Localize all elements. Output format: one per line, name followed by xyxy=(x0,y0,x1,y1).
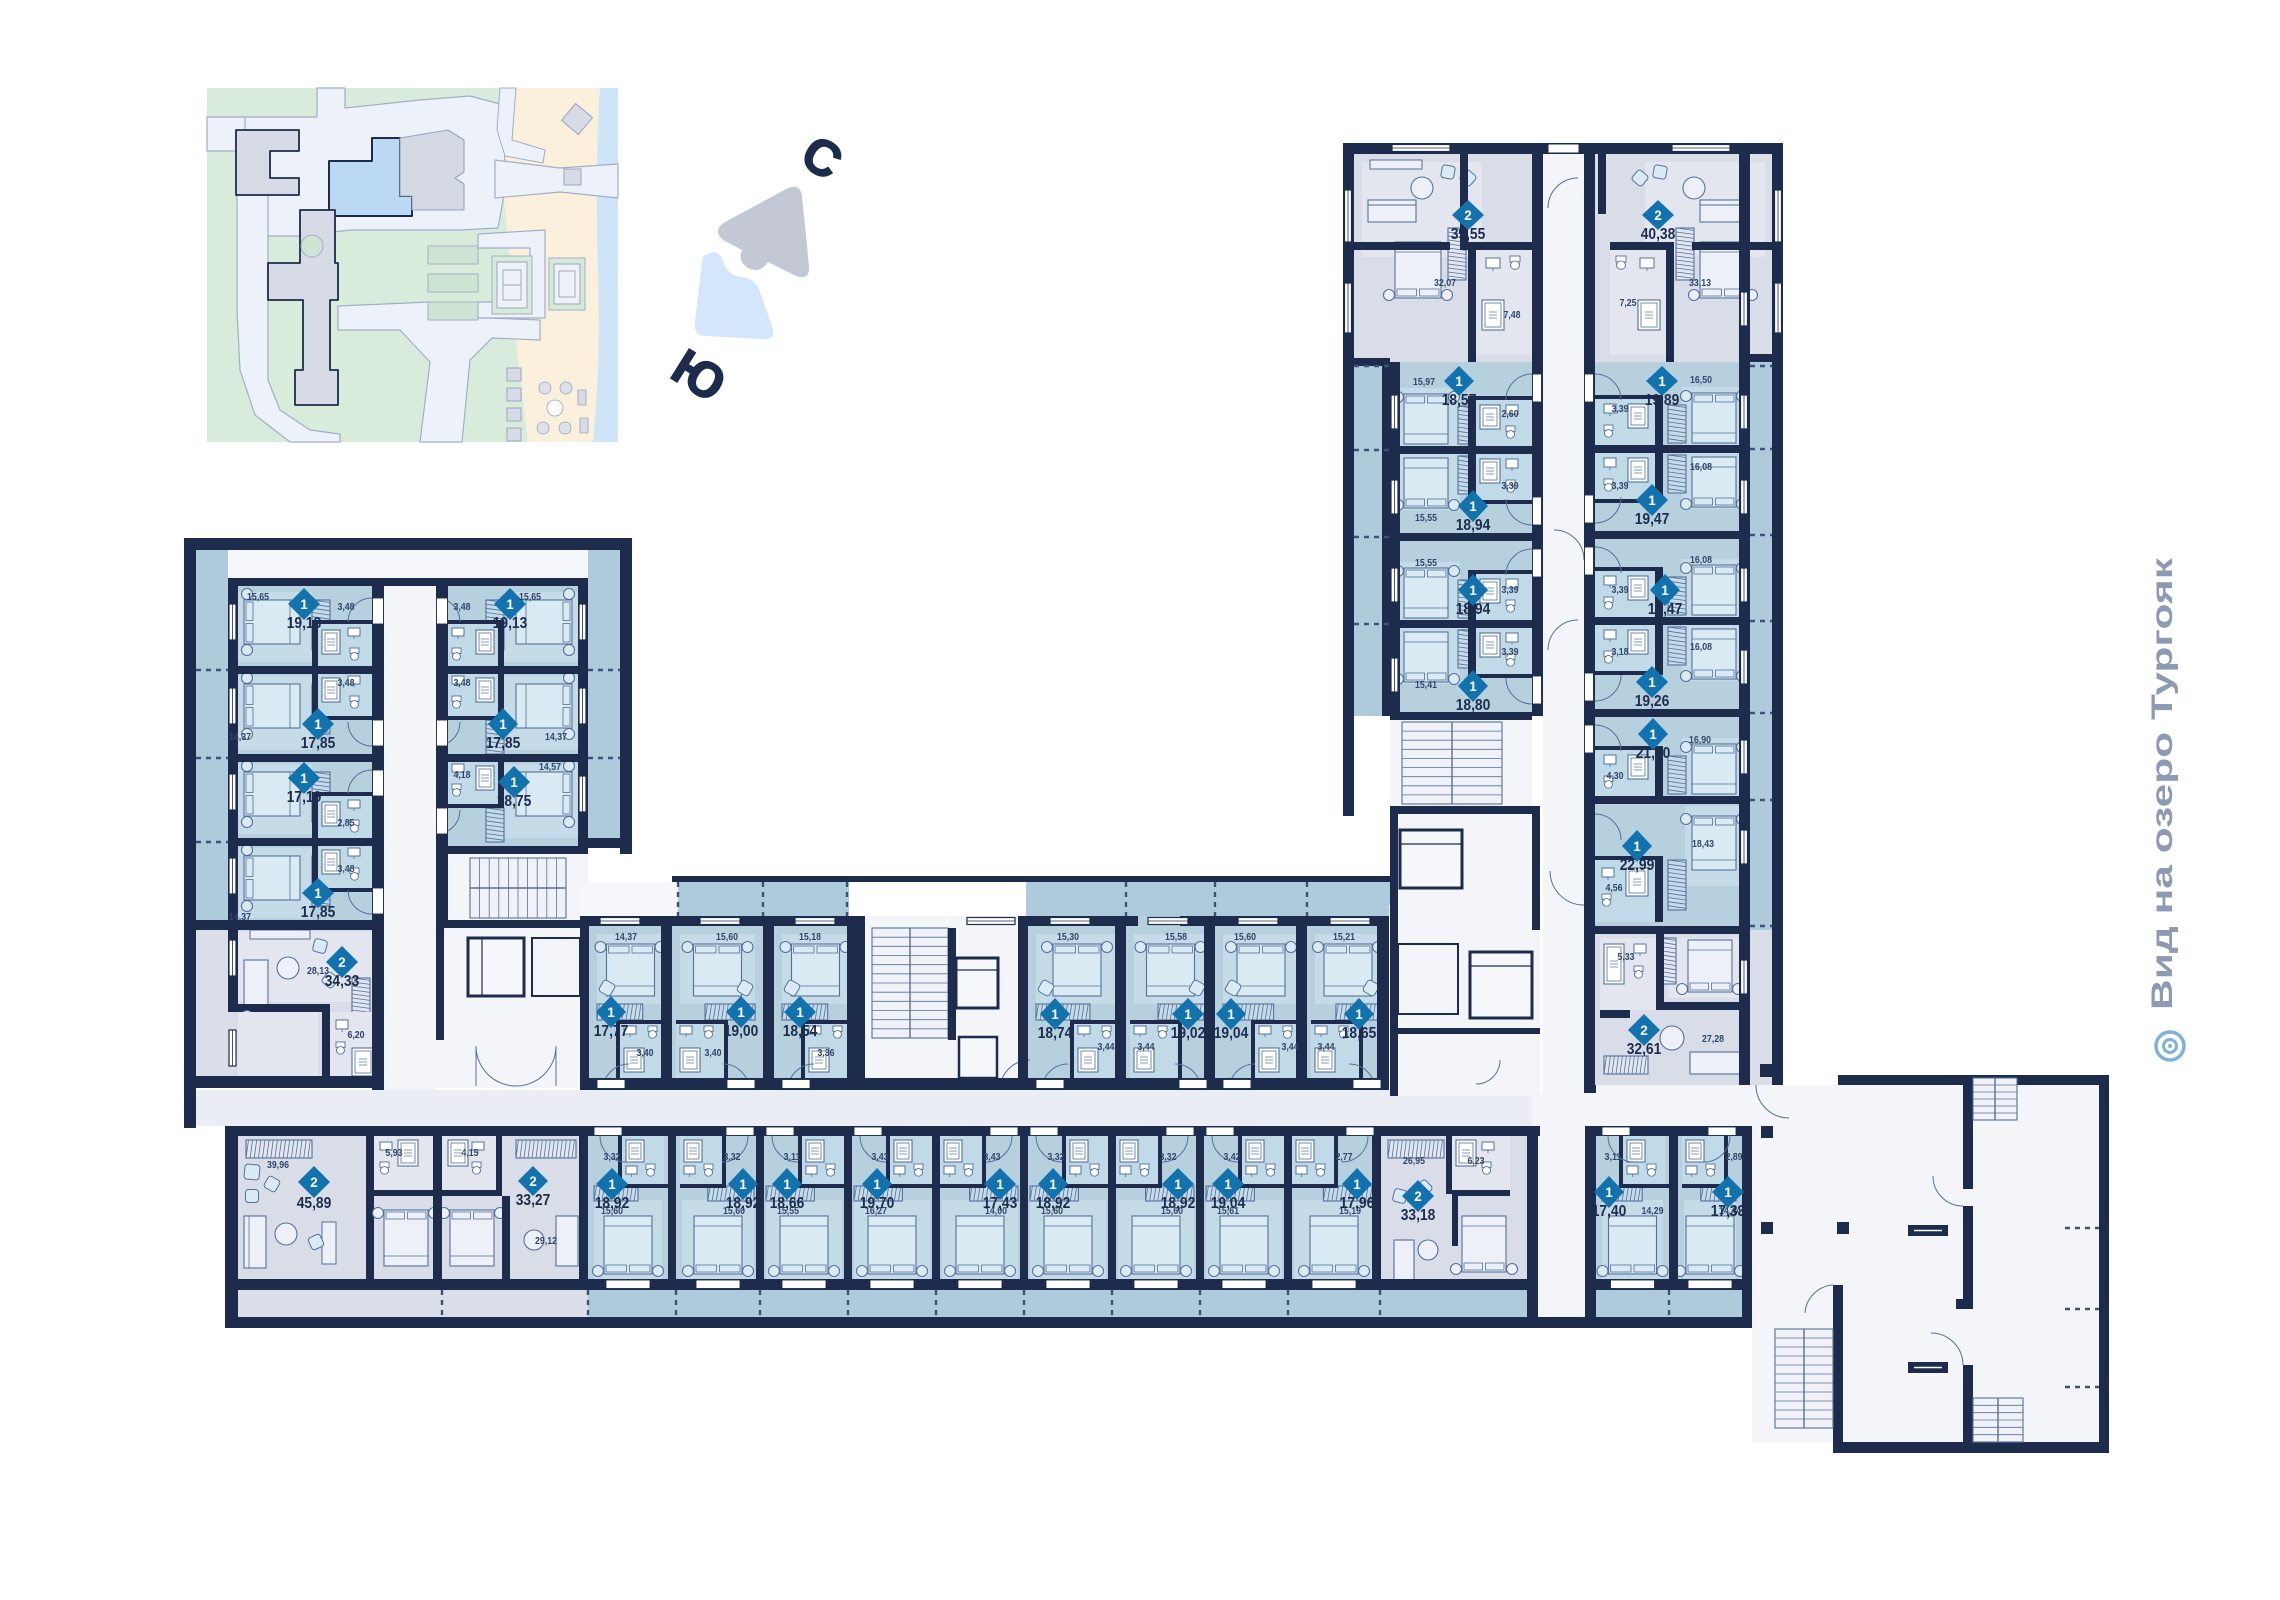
svg-text:17,43: 17,43 xyxy=(983,1195,1018,1212)
svg-text:18,80: 18,80 xyxy=(1456,697,1491,714)
svg-text:32,61: 32,61 xyxy=(1627,1041,1662,1058)
svg-text:2,77: 2,77 xyxy=(1335,1151,1352,1163)
svg-text:1: 1 xyxy=(1469,583,1477,598)
svg-text:1: 1 xyxy=(1648,675,1656,690)
svg-text:3,11: 3,11 xyxy=(783,1151,800,1163)
svg-text:1: 1 xyxy=(873,1177,881,1192)
svg-text:3,18: 3,18 xyxy=(1611,646,1628,658)
svg-text:1: 1 xyxy=(739,1177,747,1192)
svg-text:3,32: 3,32 xyxy=(1159,1151,1176,1163)
svg-text:3,40: 3,40 xyxy=(704,1047,721,1059)
svg-text:1: 1 xyxy=(300,771,308,786)
svg-text:3,48: 3,48 xyxy=(453,677,470,689)
svg-text:15,58: 15,58 xyxy=(1165,931,1187,943)
svg-text:14,37: 14,37 xyxy=(229,731,251,743)
svg-text:19,13: 19,13 xyxy=(287,615,322,632)
svg-text:16,08: 16,08 xyxy=(1690,554,1712,566)
svg-text:18,43: 18,43 xyxy=(1692,838,1714,850)
svg-text:3,44: 3,44 xyxy=(1281,1041,1298,1053)
svg-text:18,92: 18,92 xyxy=(1036,1195,1071,1212)
svg-text:15,65: 15,65 xyxy=(247,591,269,603)
svg-text:16,08: 16,08 xyxy=(1690,641,1712,653)
svg-text:3,32: 3,32 xyxy=(603,1151,620,1163)
svg-text:19,89: 19,89 xyxy=(1645,392,1680,409)
svg-text:39,96: 39,96 xyxy=(267,1159,289,1171)
svg-text:18,66: 18,66 xyxy=(770,1195,805,1212)
svg-text:1: 1 xyxy=(737,1005,745,1020)
svg-text:3,11: 3,11 xyxy=(1604,1151,1621,1163)
svg-text:3,39: 3,39 xyxy=(1501,480,1518,492)
svg-text:1: 1 xyxy=(1353,1177,1361,1192)
svg-text:15,97: 15,97 xyxy=(1413,376,1435,388)
svg-text:1: 1 xyxy=(796,1005,804,1020)
svg-text:Вид на озеро Тургояк: Вид на озеро Тургояк xyxy=(2146,557,2179,1010)
svg-text:18,57: 18,57 xyxy=(1442,392,1477,409)
svg-text:16,08: 16,08 xyxy=(1690,461,1712,473)
svg-text:17,40: 17,40 xyxy=(1592,1203,1627,1220)
svg-text:1: 1 xyxy=(996,1177,1004,1192)
svg-text:1: 1 xyxy=(1661,583,1669,598)
svg-text:2: 2 xyxy=(1640,1023,1648,1038)
svg-text:1: 1 xyxy=(607,1005,615,1020)
svg-text:16,90: 16,90 xyxy=(1689,734,1711,746)
svg-text:17,85: 17,85 xyxy=(486,735,521,752)
svg-text:5,33: 5,33 xyxy=(1617,951,1634,963)
svg-text:16,50: 16,50 xyxy=(1690,374,1712,386)
svg-text:3,48: 3,48 xyxy=(337,677,354,689)
svg-text:29,12: 29,12 xyxy=(535,1235,557,1247)
svg-text:14,57: 14,57 xyxy=(539,761,561,773)
svg-text:19,47: 19,47 xyxy=(1648,601,1683,618)
svg-text:15,55: 15,55 xyxy=(1415,512,1437,524)
svg-text:3,42: 3,42 xyxy=(1223,1151,1240,1163)
svg-text:3,40: 3,40 xyxy=(636,1047,653,1059)
svg-text:15,55: 15,55 xyxy=(1415,557,1437,569)
svg-text:15,60: 15,60 xyxy=(1234,931,1256,943)
svg-text:1: 1 xyxy=(1455,374,1463,389)
svg-text:1: 1 xyxy=(499,717,507,732)
svg-text:18,94: 18,94 xyxy=(1456,517,1491,534)
svg-text:27,28: 27,28 xyxy=(1702,1033,1724,1045)
svg-text:6,23: 6,23 xyxy=(1467,1155,1484,1167)
svg-text:17,77: 17,77 xyxy=(594,1023,629,1040)
svg-text:18,94: 18,94 xyxy=(1456,601,1491,618)
svg-text:3,48: 3,48 xyxy=(453,601,470,613)
svg-text:22,99: 22,99 xyxy=(1620,857,1655,874)
svg-text:19,70: 19,70 xyxy=(860,1195,895,1212)
svg-text:18,75: 18,75 xyxy=(497,793,532,810)
svg-text:17,33: 17,33 xyxy=(1711,1203,1746,1220)
svg-text:1: 1 xyxy=(1174,1177,1182,1192)
svg-text:3,44: 3,44 xyxy=(1097,1041,1114,1053)
svg-text:19,04: 19,04 xyxy=(1211,1195,1246,1212)
svg-text:19,13: 19,13 xyxy=(493,615,528,632)
svg-text:19,00: 19,00 xyxy=(724,1023,759,1040)
svg-text:1: 1 xyxy=(1633,839,1641,854)
svg-text:26,95: 26,95 xyxy=(1403,1155,1425,1167)
svg-text:32,07: 32,07 xyxy=(1434,277,1456,289)
svg-text:17,19: 17,19 xyxy=(287,789,322,806)
svg-text:6,20: 6,20 xyxy=(347,1029,364,1041)
svg-text:1: 1 xyxy=(1355,1007,1363,1022)
svg-text:1: 1 xyxy=(1605,1185,1613,1200)
svg-text:19,47: 19,47 xyxy=(1635,511,1670,528)
svg-text:1: 1 xyxy=(783,1177,791,1192)
svg-text:4,15: 4,15 xyxy=(461,1147,478,1159)
svg-text:33,27: 33,27 xyxy=(516,1192,551,1209)
svg-text:14,29: 14,29 xyxy=(1642,1205,1664,1217)
svg-text:2: 2 xyxy=(529,1174,537,1189)
svg-text:15,65: 15,65 xyxy=(519,591,541,603)
svg-text:3,43: 3,43 xyxy=(983,1151,1000,1163)
svg-text:1: 1 xyxy=(1049,1177,1057,1192)
svg-text:14,37: 14,37 xyxy=(615,931,637,943)
svg-text:4,56: 4,56 xyxy=(1605,882,1622,894)
svg-text:1: 1 xyxy=(314,886,322,901)
svg-text:2: 2 xyxy=(338,955,346,970)
svg-text:15,60: 15,60 xyxy=(716,931,738,943)
svg-text:21,20: 21,20 xyxy=(1636,745,1671,762)
svg-text:2,89: 2,89 xyxy=(1725,1151,1742,1163)
svg-text:1: 1 xyxy=(1649,727,1657,742)
svg-text:18,92: 18,92 xyxy=(595,1195,630,1212)
svg-text:3,48: 3,48 xyxy=(337,601,354,613)
svg-text:1: 1 xyxy=(1724,1185,1732,1200)
svg-text:14,37: 14,37 xyxy=(545,731,567,743)
svg-text:18,54: 18,54 xyxy=(783,1023,818,1040)
svg-text:1: 1 xyxy=(1469,679,1477,694)
svg-text:3,39: 3,39 xyxy=(1611,584,1628,596)
svg-text:40,38: 40,38 xyxy=(1641,226,1676,243)
svg-text:15,30: 15,30 xyxy=(1057,931,1079,943)
svg-text:2,85: 2,85 xyxy=(337,817,354,829)
svg-text:15,21: 15,21 xyxy=(1333,931,1355,943)
svg-text:17,85: 17,85 xyxy=(301,735,336,752)
svg-text:1: 1 xyxy=(510,775,518,790)
svg-text:33,13: 33,13 xyxy=(1689,277,1711,289)
svg-text:2,60: 2,60 xyxy=(1501,408,1518,420)
svg-text:2: 2 xyxy=(1414,1189,1422,1204)
svg-text:19,04: 19,04 xyxy=(1214,1025,1249,1042)
svg-text:3,32: 3,32 xyxy=(723,1151,740,1163)
svg-text:4,18: 4,18 xyxy=(453,769,470,781)
svg-text:3,39: 3,39 xyxy=(1611,480,1628,492)
svg-text:1: 1 xyxy=(1051,1007,1059,1022)
svg-text:1: 1 xyxy=(1184,1007,1192,1022)
svg-text:2: 2 xyxy=(1464,208,1472,223)
svg-text:1: 1 xyxy=(1227,1007,1235,1022)
svg-text:1: 1 xyxy=(1648,493,1656,508)
svg-text:4,30: 4,30 xyxy=(1606,770,1623,782)
svg-text:33,18: 33,18 xyxy=(1401,1207,1436,1224)
svg-text:7,25: 7,25 xyxy=(1619,297,1636,309)
svg-text:3,43: 3,43 xyxy=(871,1151,888,1163)
svg-text:18,92: 18,92 xyxy=(726,1195,761,1212)
svg-text:17,85: 17,85 xyxy=(301,904,336,921)
svg-text:3,36: 3,36 xyxy=(817,1047,834,1059)
svg-text:3,44: 3,44 xyxy=(1317,1041,1334,1053)
svg-text:39,55: 39,55 xyxy=(1451,226,1486,243)
svg-text:7,48: 7,48 xyxy=(1503,309,1520,321)
svg-text:3,44: 3,44 xyxy=(1137,1041,1154,1053)
svg-text:5,93: 5,93 xyxy=(385,1147,402,1159)
svg-text:34,33: 34,33 xyxy=(325,973,360,990)
svg-text:19,02: 19,02 xyxy=(1171,1025,1206,1042)
svg-text:3,32: 3,32 xyxy=(1047,1151,1064,1163)
svg-text:1: 1 xyxy=(1469,499,1477,514)
svg-text:1: 1 xyxy=(608,1177,616,1192)
svg-text:17,96: 17,96 xyxy=(1340,1195,1375,1212)
svg-text:15,18: 15,18 xyxy=(799,931,821,943)
svg-text:1: 1 xyxy=(314,717,322,732)
svg-text:1: 1 xyxy=(1658,374,1666,389)
svg-text:14,37: 14,37 xyxy=(229,911,251,923)
svg-text:3,39: 3,39 xyxy=(1611,403,1628,415)
svg-text:3,48: 3,48 xyxy=(337,863,354,875)
svg-text:18,92: 18,92 xyxy=(1161,1195,1196,1212)
svg-text:1: 1 xyxy=(300,597,308,612)
svg-text:2: 2 xyxy=(310,1175,318,1190)
svg-text:15,41: 15,41 xyxy=(1415,679,1437,691)
svg-text:18,65: 18,65 xyxy=(1342,1025,1377,1042)
svg-text:3,39: 3,39 xyxy=(1501,584,1518,596)
svg-text:2: 2 xyxy=(1654,208,1662,223)
svg-text:45,89: 45,89 xyxy=(297,1195,332,1212)
svg-text:19,26: 19,26 xyxy=(1635,693,1670,710)
svg-text:1: 1 xyxy=(506,597,514,612)
svg-text:18,74: 18,74 xyxy=(1038,1025,1073,1042)
svg-text:1: 1 xyxy=(1224,1177,1232,1192)
svg-text:3,39: 3,39 xyxy=(1501,646,1518,658)
